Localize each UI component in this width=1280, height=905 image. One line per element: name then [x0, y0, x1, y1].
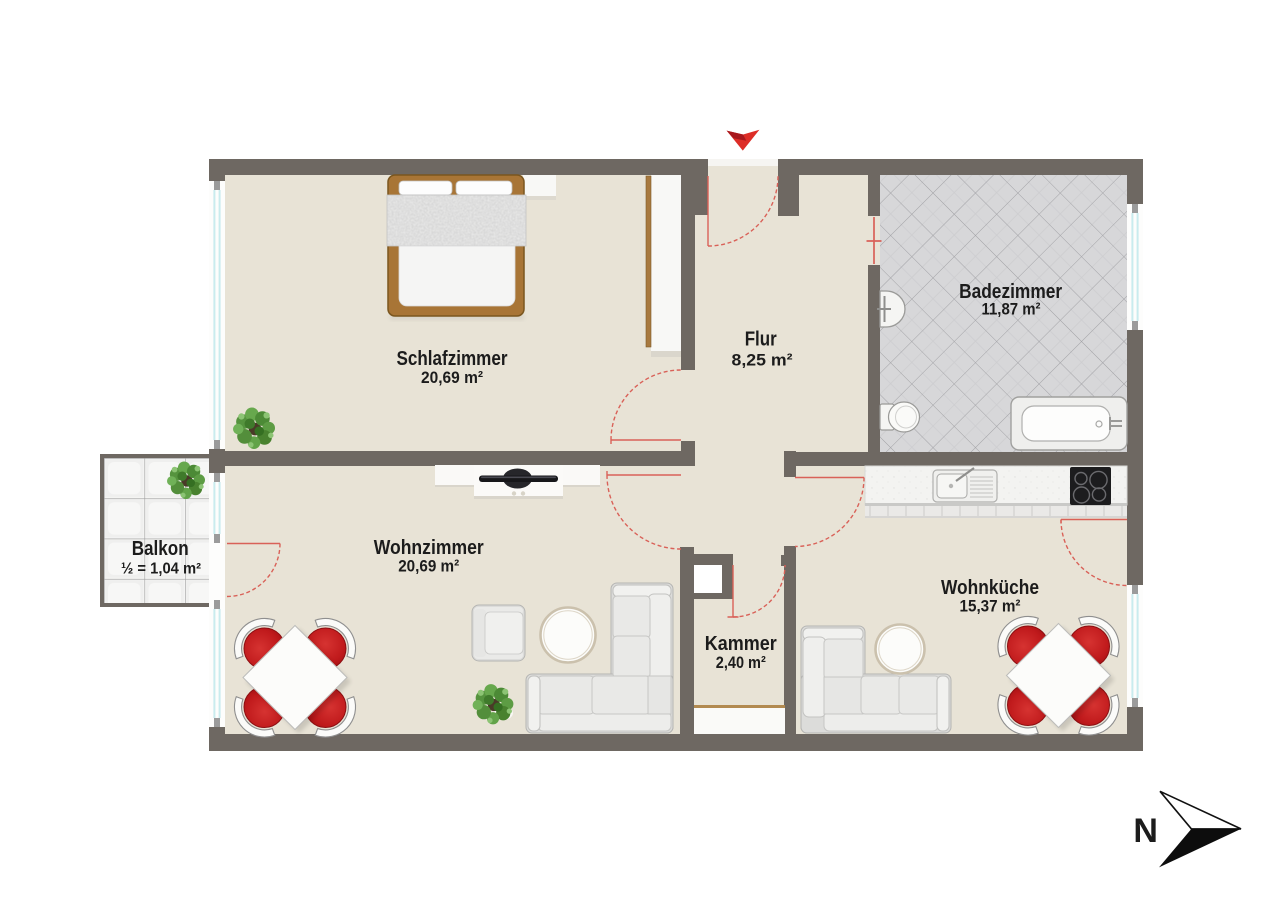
svg-text:15,37 m²: 15,37 m²: [960, 597, 1021, 616]
svg-text:8,25 m²: 8,25 m²: [732, 351, 793, 370]
svg-text:N: N: [1133, 812, 1158, 850]
svg-text:11,87 m²: 11,87 m²: [982, 300, 1041, 319]
svg-text:Balkon: Balkon: [132, 537, 189, 560]
svg-text:20,69 m²: 20,69 m²: [421, 368, 483, 387]
svg-text:½ = 1,04 m²: ½ = 1,04 m²: [121, 561, 201, 578]
svg-text:2,40 m²: 2,40 m²: [716, 653, 766, 672]
svg-text:20,69 m²: 20,69 m²: [398, 557, 459, 576]
svg-text:Schlafzimmer: Schlafzimmer: [397, 347, 508, 370]
svg-text:Flur: Flur: [745, 328, 777, 351]
svg-text:Kammer: Kammer: [705, 632, 777, 655]
